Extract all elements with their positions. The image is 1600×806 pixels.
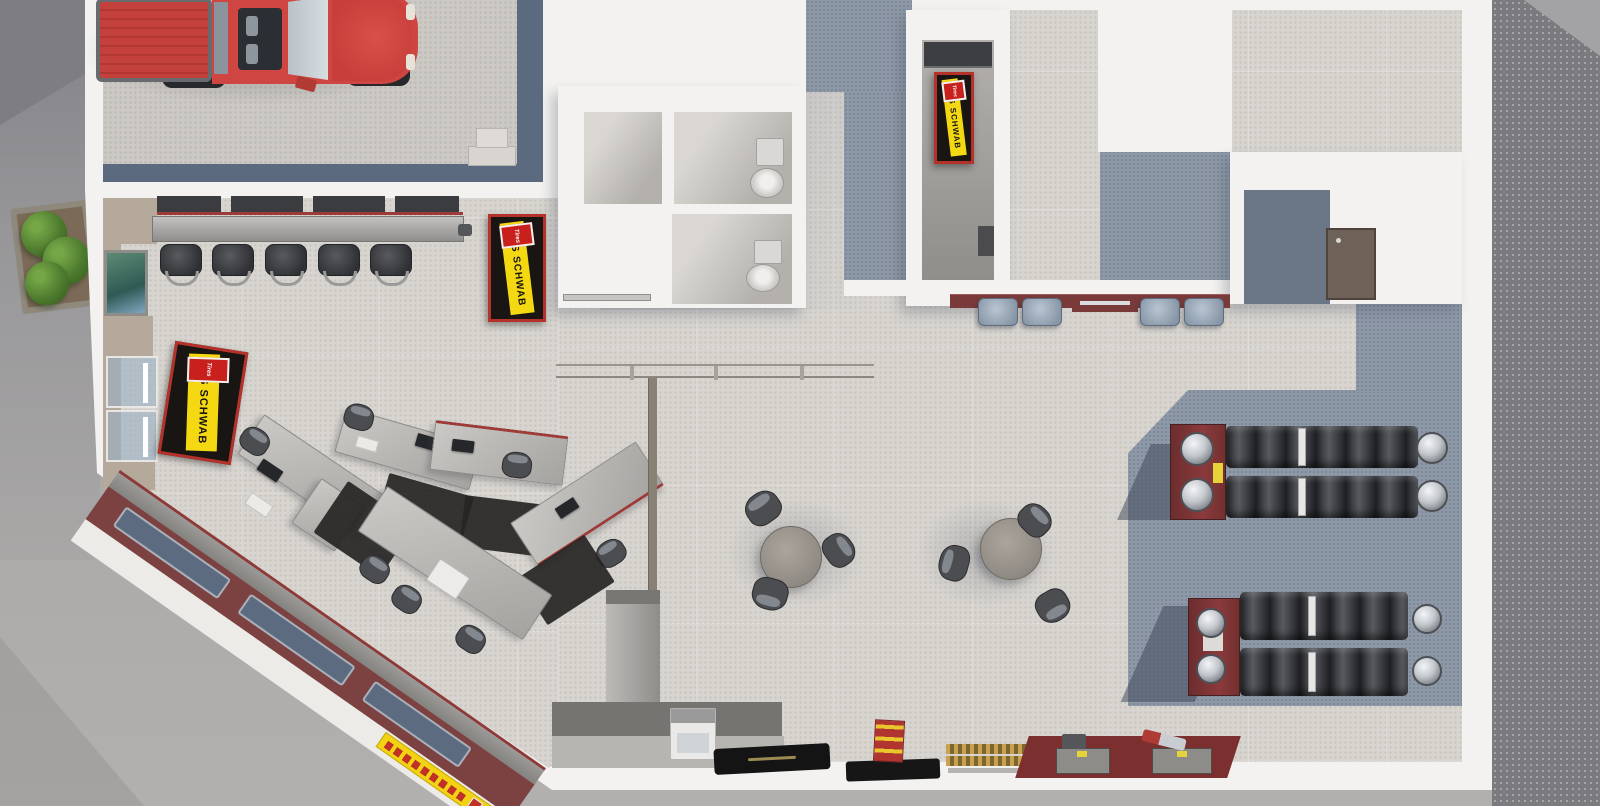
les-schwab-tires-logo: Tires: [499, 222, 535, 249]
display-wheel: [1412, 604, 1442, 634]
display-wheel: [1416, 432, 1448, 464]
bay-step: [476, 128, 508, 148]
counter-stool: [318, 244, 360, 276]
storage-closet-floor: [584, 112, 662, 204]
partition-post: [800, 366, 804, 380]
red-pickup-truck: [92, 0, 422, 94]
truck-rear-window: [214, 2, 228, 74]
fixture-label: [1077, 751, 1087, 757]
counter-stool: [160, 244, 202, 276]
front-counter-top: [552, 702, 782, 738]
bench-side-table: [1072, 296, 1138, 312]
partition-rail-vertical: [648, 378, 657, 592]
les-schwab-tires-logo: Tires: [187, 356, 230, 382]
les-schwab-hallway-mat: LES SCHWAB Tires: [934, 72, 974, 164]
bay-band-right: [517, 0, 543, 182]
brochure-stand: [873, 719, 905, 763]
banner-tires-shield: [466, 797, 483, 806]
fixture-label: [1177, 751, 1187, 757]
truck-seat: [246, 16, 258, 36]
support-column: [606, 590, 660, 714]
hallway-side-door: [978, 226, 994, 256]
carpet-top: [806, 0, 912, 92]
rear-entry-door: [1326, 228, 1376, 300]
bench-cushion: [1022, 298, 1062, 326]
partition-post: [714, 366, 718, 380]
door-handle: [1336, 238, 1341, 243]
display-machine: [1062, 734, 1086, 749]
display-wheel: [1180, 478, 1214, 512]
plaque-script: [748, 756, 796, 762]
tire-rack: [1170, 424, 1448, 520]
tire-row: [1240, 592, 1408, 640]
display-wheel: [1196, 654, 1226, 684]
column-cap: [606, 590, 660, 604]
truck-headlight: [406, 4, 415, 20]
bench-table-chrome: [1080, 301, 1130, 305]
bench-cushion: [1140, 298, 1180, 326]
counter-end-fixture: [458, 224, 472, 236]
truck-bed: [96, 0, 212, 82]
truck-headlight: [406, 54, 415, 70]
tire-row: [1226, 476, 1418, 518]
rack-post: [1308, 596, 1316, 636]
tire-rack: [1188, 592, 1452, 702]
hallway-door: [924, 42, 992, 68]
carpet-east: [1100, 150, 1232, 292]
tire-row: [1226, 426, 1418, 468]
bench-cushion: [978, 298, 1018, 326]
bay-band-bottom: [103, 164, 543, 182]
carpet-band: [844, 92, 914, 292]
carpet-tire-area-ne: [1356, 300, 1462, 392]
truck-sunroof: [238, 8, 282, 70]
les-schwab-tires-logo: Tires: [941, 80, 966, 103]
asphalt-right: [1492, 0, 1600, 806]
entry-door: [106, 356, 158, 408]
rack-post: [1298, 428, 1306, 466]
counter-stool: [265, 244, 307, 276]
bay-step: [468, 146, 516, 166]
alcove-wall-dark: [1244, 190, 1330, 304]
tan-wall-corner: [103, 198, 157, 244]
truck-windshield: [288, 0, 328, 80]
bench-cushion: [1184, 298, 1224, 326]
tires-logo-text: Tires: [205, 362, 211, 376]
rack-label: [1213, 463, 1223, 483]
toilet-bowl: [746, 264, 780, 292]
counter-stool: [212, 244, 254, 276]
entry-door: [106, 410, 158, 462]
rack-post: [1308, 652, 1316, 692]
restroom-roof: [558, 10, 806, 88]
desk-monitor: [451, 439, 474, 454]
rack-post: [1298, 478, 1306, 516]
parts-display-tray: [946, 742, 1028, 772]
window-counter: [152, 216, 464, 242]
counter-stool: [370, 244, 412, 276]
truck-hood: [332, 0, 412, 81]
coffee-machine: [670, 708, 716, 760]
display-wheel: [1412, 656, 1442, 686]
tires-logo-text: Tires: [950, 85, 957, 98]
display-wheel: [1196, 608, 1226, 638]
toilet-tank: [756, 138, 784, 166]
display-wheel: [1180, 432, 1214, 466]
vestibule-window: [104, 250, 148, 316]
brake-display-fixture: [1152, 748, 1212, 774]
tan-wall-mid: [103, 316, 153, 356]
coffee-machine-top: [671, 709, 715, 723]
partition-post: [630, 366, 634, 380]
roof-block-topright: [1098, 10, 1232, 152]
toilet-bowl: [750, 168, 784, 198]
door-push-bar: [143, 417, 148, 457]
les-schwab-showroom-sign: LES SCHWAB Tires: [488, 214, 546, 322]
display-wheel: [1416, 480, 1448, 512]
truck-seat: [246, 44, 258, 64]
threshold-vent: [563, 294, 651, 301]
door-push-bar: [143, 363, 148, 403]
red-accent-strip: [157, 212, 463, 215]
partition-rail-horizontal: [556, 364, 874, 378]
parts-row: [946, 756, 1026, 766]
floorplan-render: LES SCHWAB Tires LES SCHWAB Tires LES SC…: [0, 0, 1600, 806]
tires-logo-text: Tires: [513, 228, 521, 243]
toilet-tank: [754, 240, 782, 264]
brake-display-fixture: [1056, 748, 1110, 774]
tire-row: [1240, 648, 1408, 696]
parts-tray-base: [948, 768, 1026, 773]
parts-row: [946, 744, 1026, 754]
coffee-machine-face: [677, 733, 709, 753]
